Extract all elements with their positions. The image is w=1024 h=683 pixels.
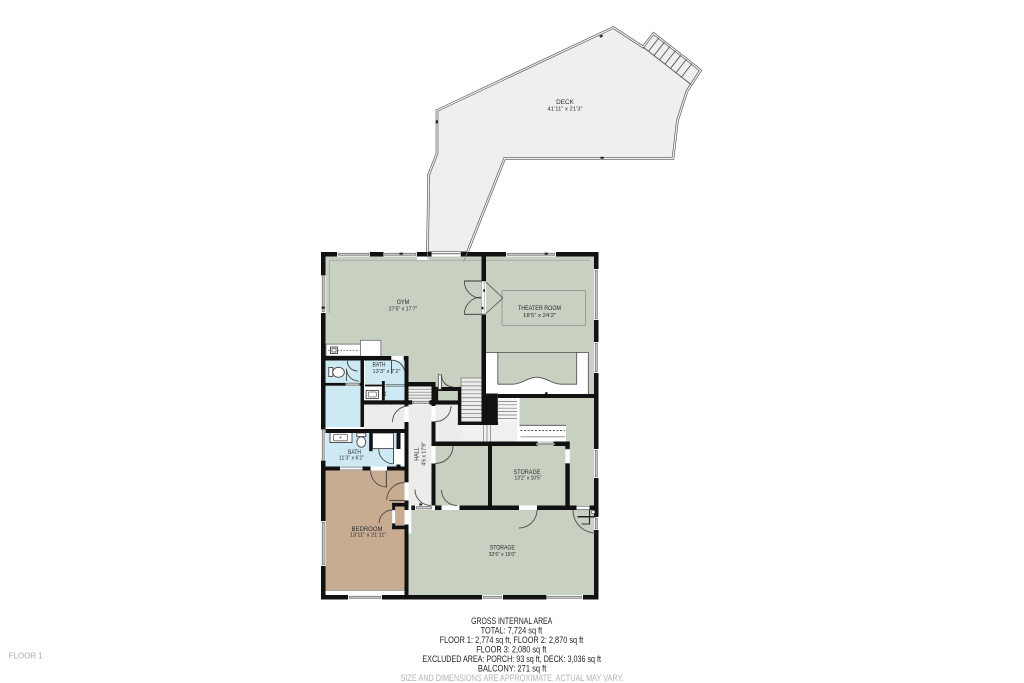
svg-text:13’11” x 21’11”: 13’11” x 21’11” [350, 533, 387, 539]
svg-text:13’2” x 10’5”: 13’2” x 10’5” [515, 475, 542, 481]
svg-text:SIZE AND DIMENSIONS ARE APPROX: SIZE AND DIMENSIONS ARE APPROXIMATE. ACT… [401, 672, 624, 683]
svg-text:41’11” x 21’3”: 41’11” x 21’3” [548, 106, 583, 112]
svg-text:THEATER ROOM: THEATER ROOM [518, 305, 561, 312]
svg-text:GYM: GYM [397, 299, 410, 306]
svg-text:FLOOR 1: FLOOR 1 [9, 652, 43, 661]
svg-text:STORAGE: STORAGE [490, 544, 515, 551]
svg-text:4’6 x 17’9”: 4’6 x 17’9” [422, 442, 428, 466]
svg-text:BATH: BATH [373, 362, 386, 369]
svg-text:HALL: HALL [415, 447, 421, 461]
svg-text:32’6” x 15’0”: 32’6” x 15’0” [489, 552, 516, 558]
svg-text:27’5” x 17’7”: 27’5” x 17’7” [389, 306, 418, 312]
svg-text:18’5” x 24’2”: 18’5” x 24’2” [523, 313, 556, 319]
svg-text:DECK: DECK [556, 99, 575, 106]
svg-text:11’3” x 6’2”: 11’3” x 6’2” [339, 456, 364, 462]
svg-text:13’3” x 7’2”: 13’3” x 7’2” [373, 369, 401, 375]
